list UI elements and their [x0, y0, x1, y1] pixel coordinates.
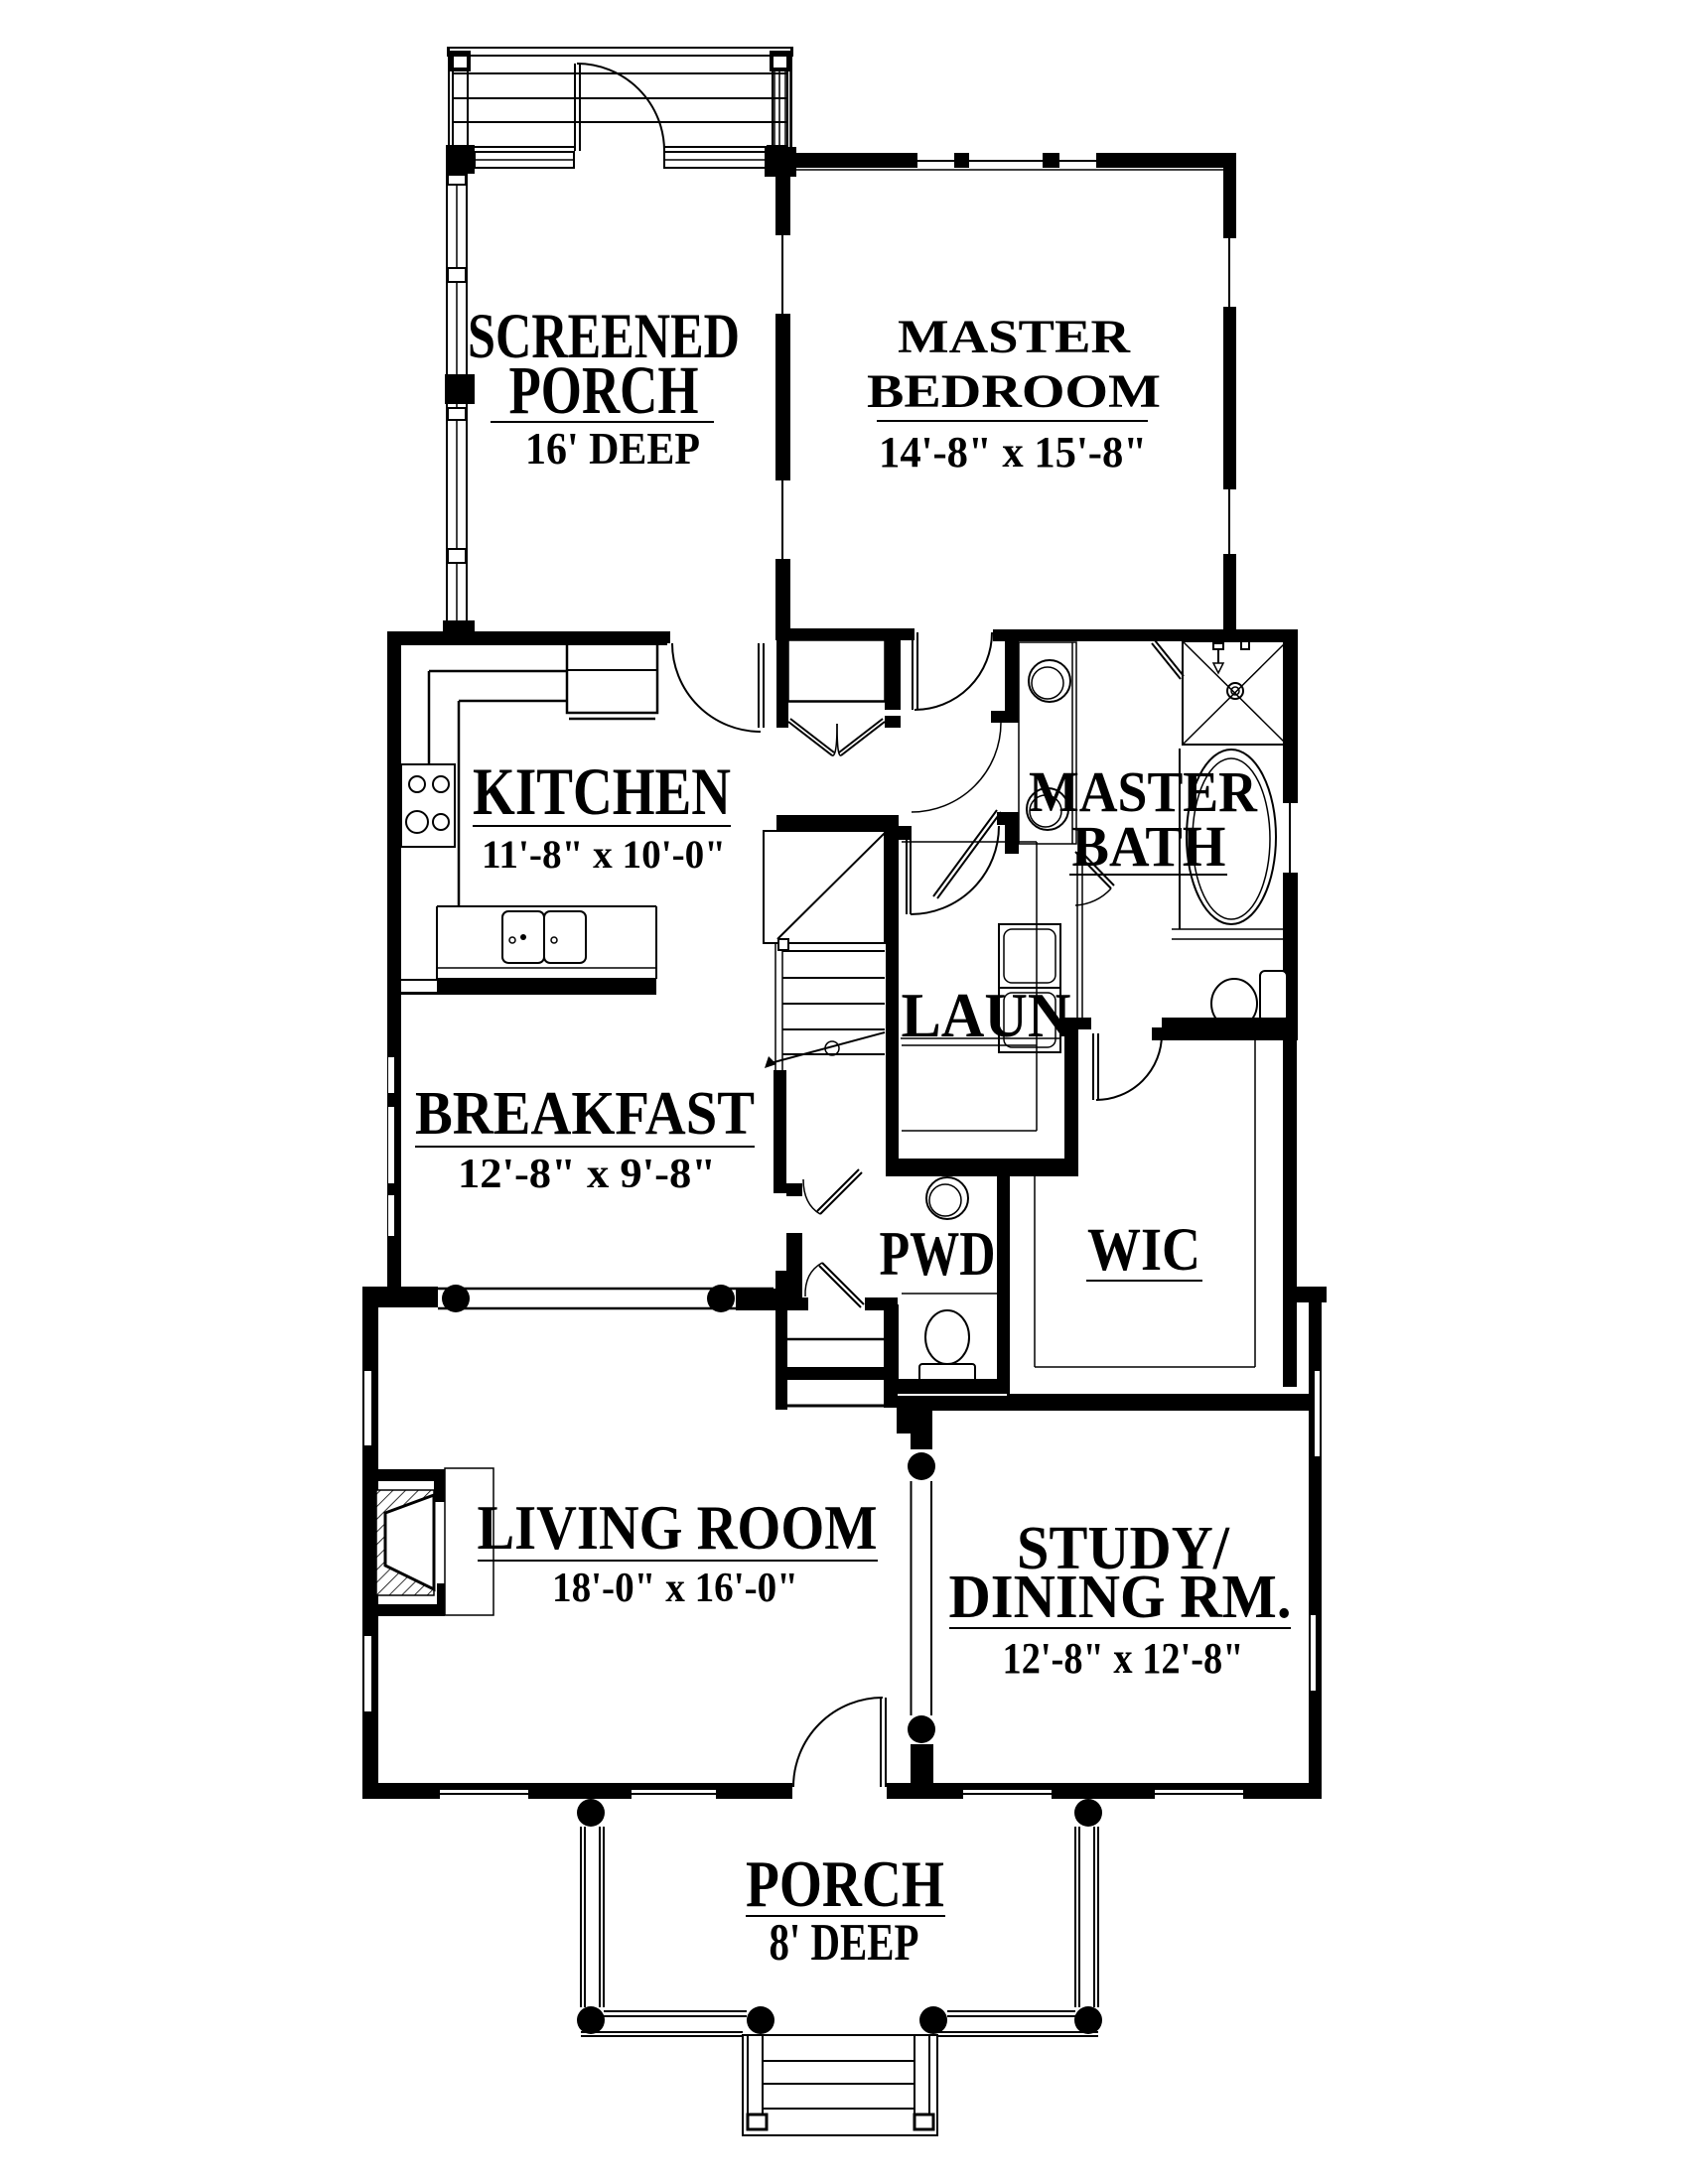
svg-text:BATH: BATH	[1072, 814, 1226, 879]
svg-text:PORCH: PORCH	[746, 1847, 944, 1921]
svg-text:MASTER: MASTER	[898, 311, 1132, 363]
svg-text:11'-8" x 10'-0": 11'-8" x 10'-0"	[482, 832, 726, 877]
svg-text:LIVING ROOM: LIVING ROOM	[478, 1492, 878, 1563]
svg-text:12'-8" x 12'-8": 12'-8" x 12'-8"	[1003, 1634, 1244, 1683]
svg-text:14'-8" x 15'-8": 14'-8" x 15'-8"	[879, 428, 1147, 477]
svg-text:PWD: PWD	[880, 1218, 996, 1289]
svg-text:8' DEEP: 8' DEEP	[770, 1914, 919, 1972]
svg-text:WIC: WIC	[1087, 1217, 1200, 1284]
svg-text:18'-0" x 16'-0": 18'-0" x 16'-0"	[552, 1566, 798, 1611]
svg-text:16' DEEP: 16' DEEP	[525, 423, 700, 474]
svg-text:DINING RM.: DINING RM.	[949, 1564, 1292, 1631]
svg-text:12'-8" x 9'-8": 12'-8" x 9'-8"	[458, 1152, 716, 1197]
svg-text:BEDROOM: BEDROOM	[867, 365, 1161, 418]
svg-text:KITCHEN: KITCHEN	[473, 753, 731, 829]
svg-text:PORCH: PORCH	[509, 352, 699, 428]
svg-text:LAUN: LAUN	[902, 980, 1071, 1050]
svg-text:BREAKFAST: BREAKFAST	[415, 1080, 755, 1148]
